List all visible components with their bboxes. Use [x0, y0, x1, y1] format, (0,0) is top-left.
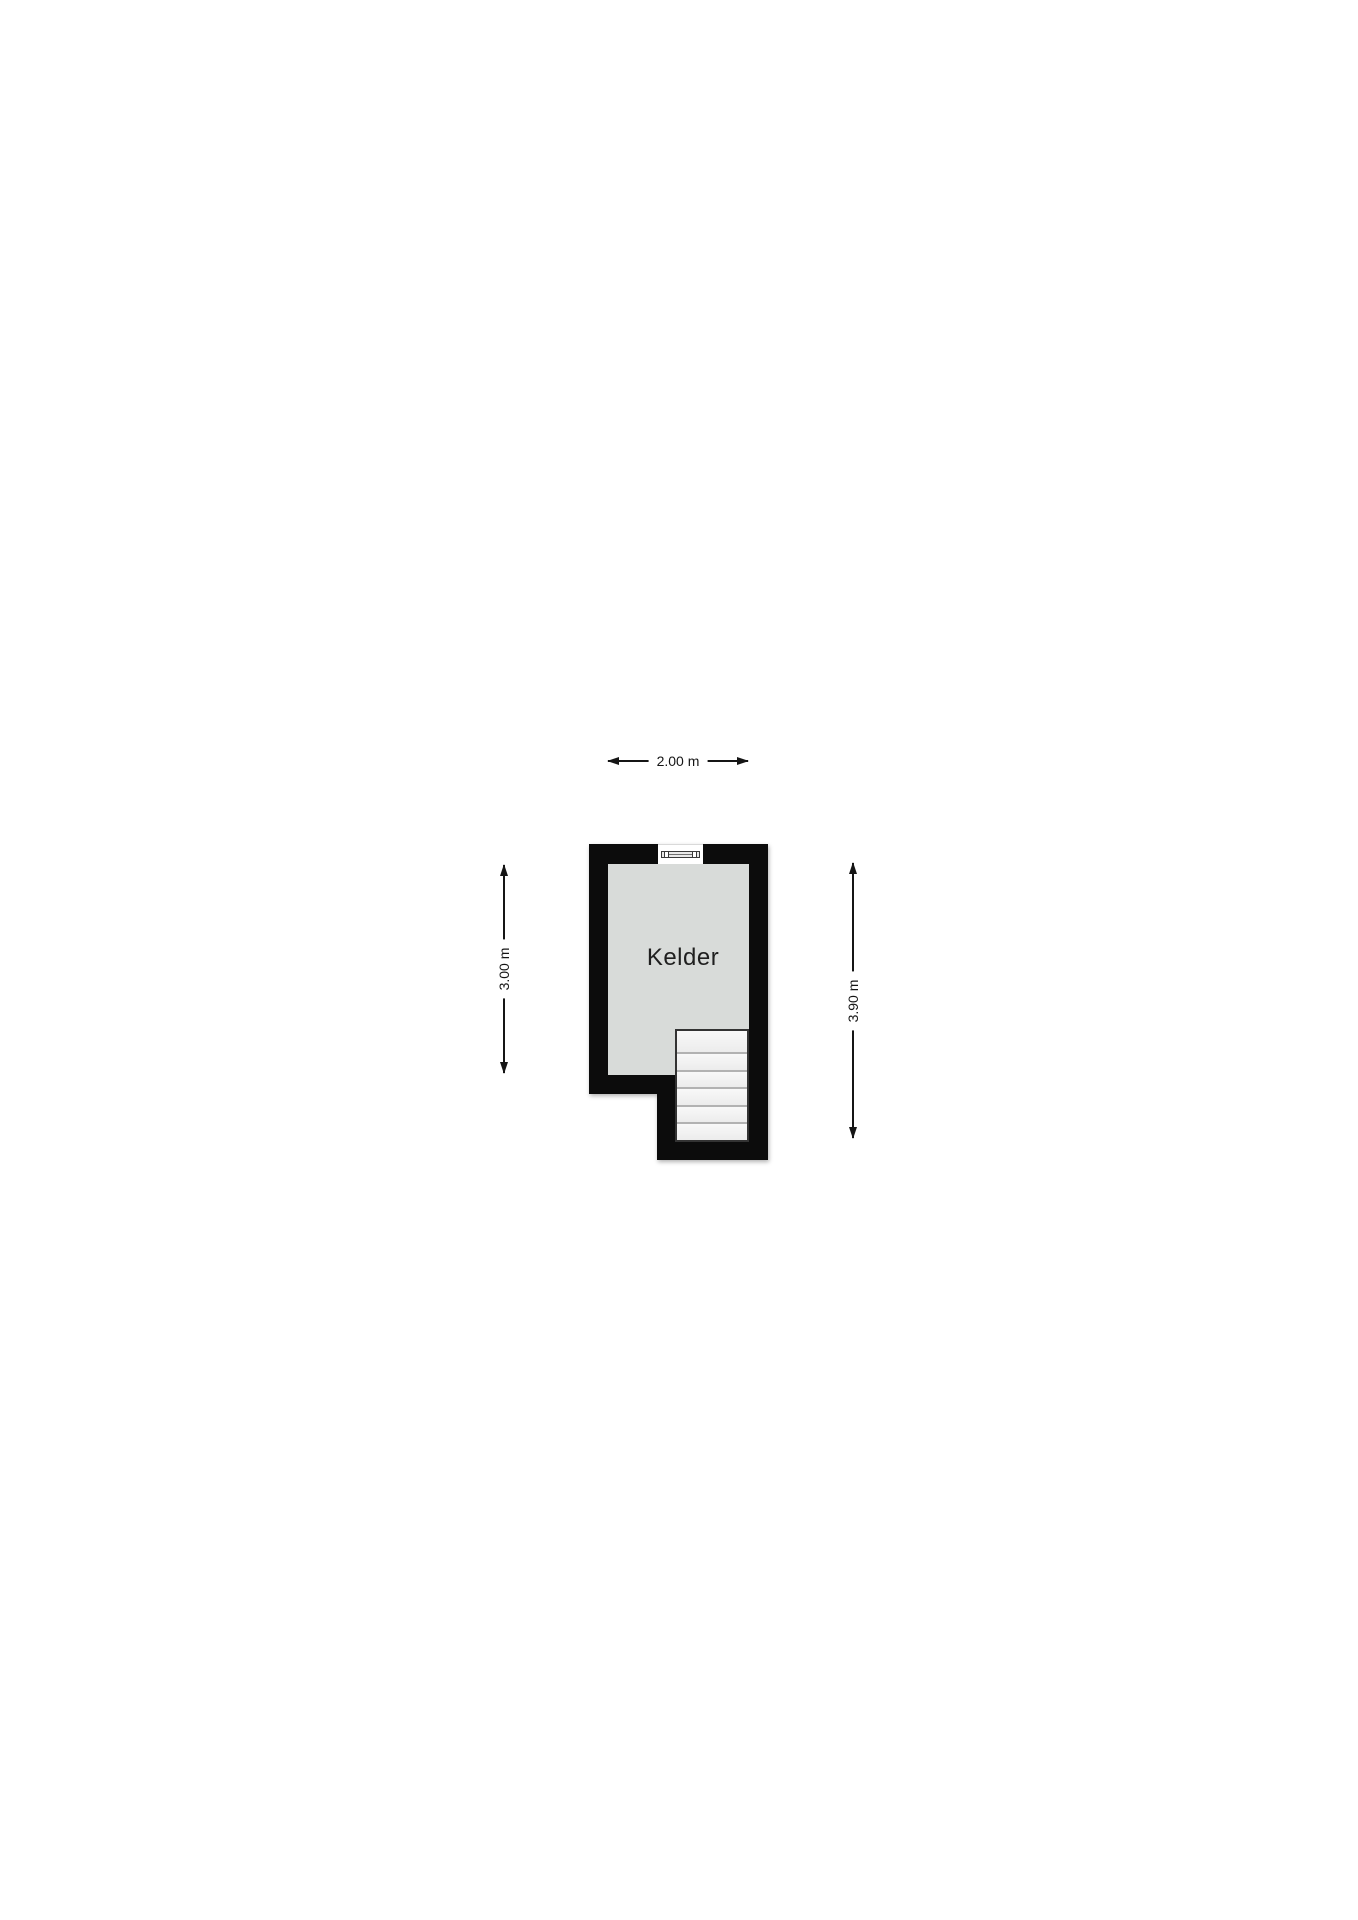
stair-tread	[677, 1031, 747, 1052]
window-cap	[692, 851, 697, 858]
stair-tread	[677, 1105, 747, 1123]
stair-tread	[677, 1070, 747, 1088]
window-opening	[658, 844, 703, 864]
room-label: Kelder	[647, 944, 719, 972]
window-symbol-icon	[661, 851, 700, 858]
dimension-height-left-label: 3.00 m	[495, 940, 513, 999]
dimension-width: 2.00 m	[608, 749, 748, 773]
arrowhead-right-icon	[737, 757, 749, 765]
dimension-height-right-label: 3.90 m	[844, 971, 862, 1030]
staircase	[675, 1029, 749, 1142]
floorplan: Kelder	[0, 0, 1358, 1920]
dimension-height-left: 3.00 m	[496, 865, 512, 1073]
stair-tread	[677, 1052, 747, 1070]
arrowhead-up-icon	[500, 864, 508, 876]
arrowhead-up-icon	[849, 862, 857, 874]
floorplan-canvas: Kelder 2.00 m 3.00 m 3.90 m	[0, 0, 1358, 1920]
arrowhead-down-icon	[849, 1127, 857, 1139]
dimension-height-right: 3.90 m	[845, 863, 861, 1138]
stair-tread	[677, 1122, 747, 1140]
arrowhead-left-icon	[607, 757, 619, 765]
window-cap	[664, 851, 669, 858]
stair-tread	[677, 1087, 747, 1105]
dimension-width-label: 2.00 m	[649, 752, 708, 770]
arrowhead-down-icon	[500, 1062, 508, 1074]
